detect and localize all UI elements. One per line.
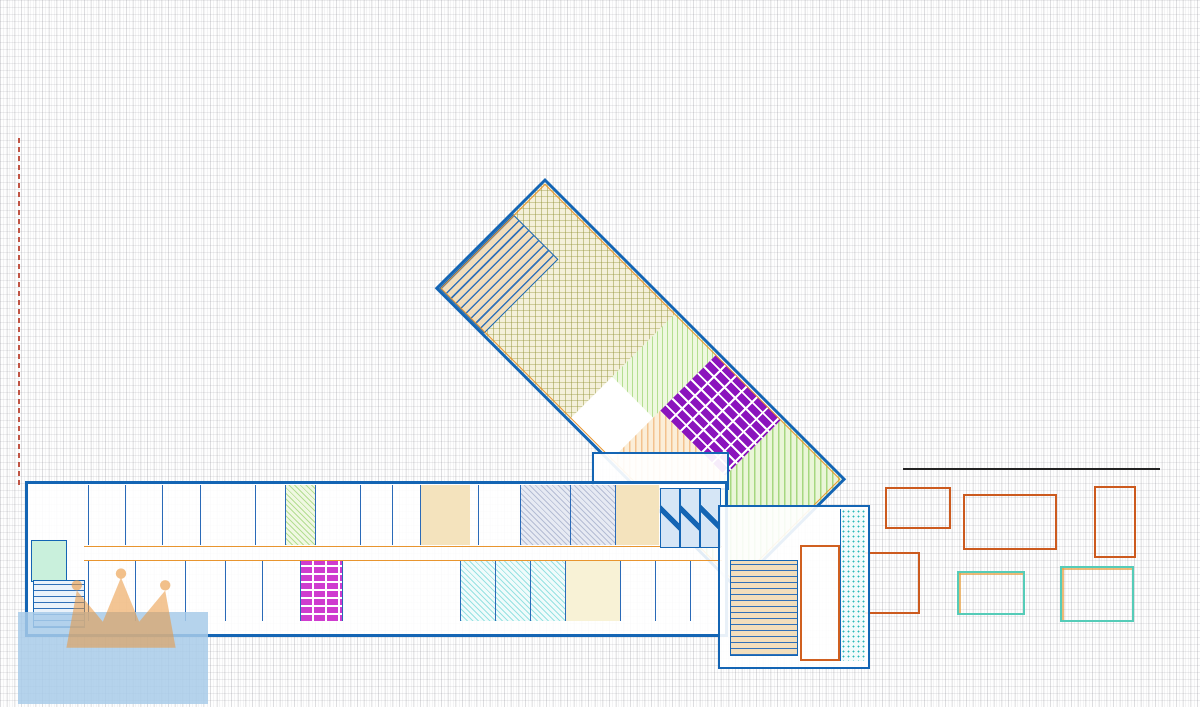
room-4A6L [460, 561, 495, 621]
right-extension-block [718, 505, 870, 669]
room-4A5P [360, 485, 392, 545]
room-4A10L [225, 561, 262, 621]
roof-rect [1094, 486, 1136, 558]
room-4A12P [88, 485, 125, 545]
room-4A2P [520, 485, 570, 545]
roof-rect-teal [1060, 566, 1134, 622]
room-4A9L [262, 561, 300, 621]
roof-rect-teal [957, 571, 1025, 615]
sheet-frame-line [18, 138, 20, 488]
room-4A8P [255, 485, 285, 545]
room-4A8L-anova [300, 561, 342, 621]
room-4A2L [620, 561, 655, 621]
service-room [615, 485, 659, 545]
maxxus-watermark [18, 612, 208, 704]
roof-rect [963, 494, 1057, 550]
elevator-shaft [680, 488, 700, 548]
corridor [84, 546, 722, 561]
room-4A1P [570, 485, 615, 545]
elevator-shaft [660, 488, 680, 548]
room-activa [420, 485, 470, 545]
maxxus-crown-icon [56, 566, 186, 654]
room-4A4L [530, 561, 565, 621]
floor-plan-sheet [0, 0, 1200, 707]
room-4A3L [565, 561, 620, 621]
extension-staircase [730, 560, 798, 656]
roof-plan-divider [903, 468, 1160, 470]
room-4A7L [342, 561, 460, 621]
room-4A10P [162, 485, 200, 545]
roof-rect [862, 552, 920, 614]
room-4A5L [495, 561, 530, 621]
room-4A4P [392, 485, 420, 545]
roof-rect [885, 487, 951, 529]
room-4A9P [200, 485, 255, 545]
room-4A7P [285, 485, 315, 545]
room-4A11P [125, 485, 162, 545]
room-4A1L-B [655, 561, 690, 621]
room-4A3P [478, 485, 520, 545]
extension-orange-room [800, 545, 840, 661]
extension-dotted-strip [840, 509, 865, 661]
room-4A6P [315, 485, 360, 545]
